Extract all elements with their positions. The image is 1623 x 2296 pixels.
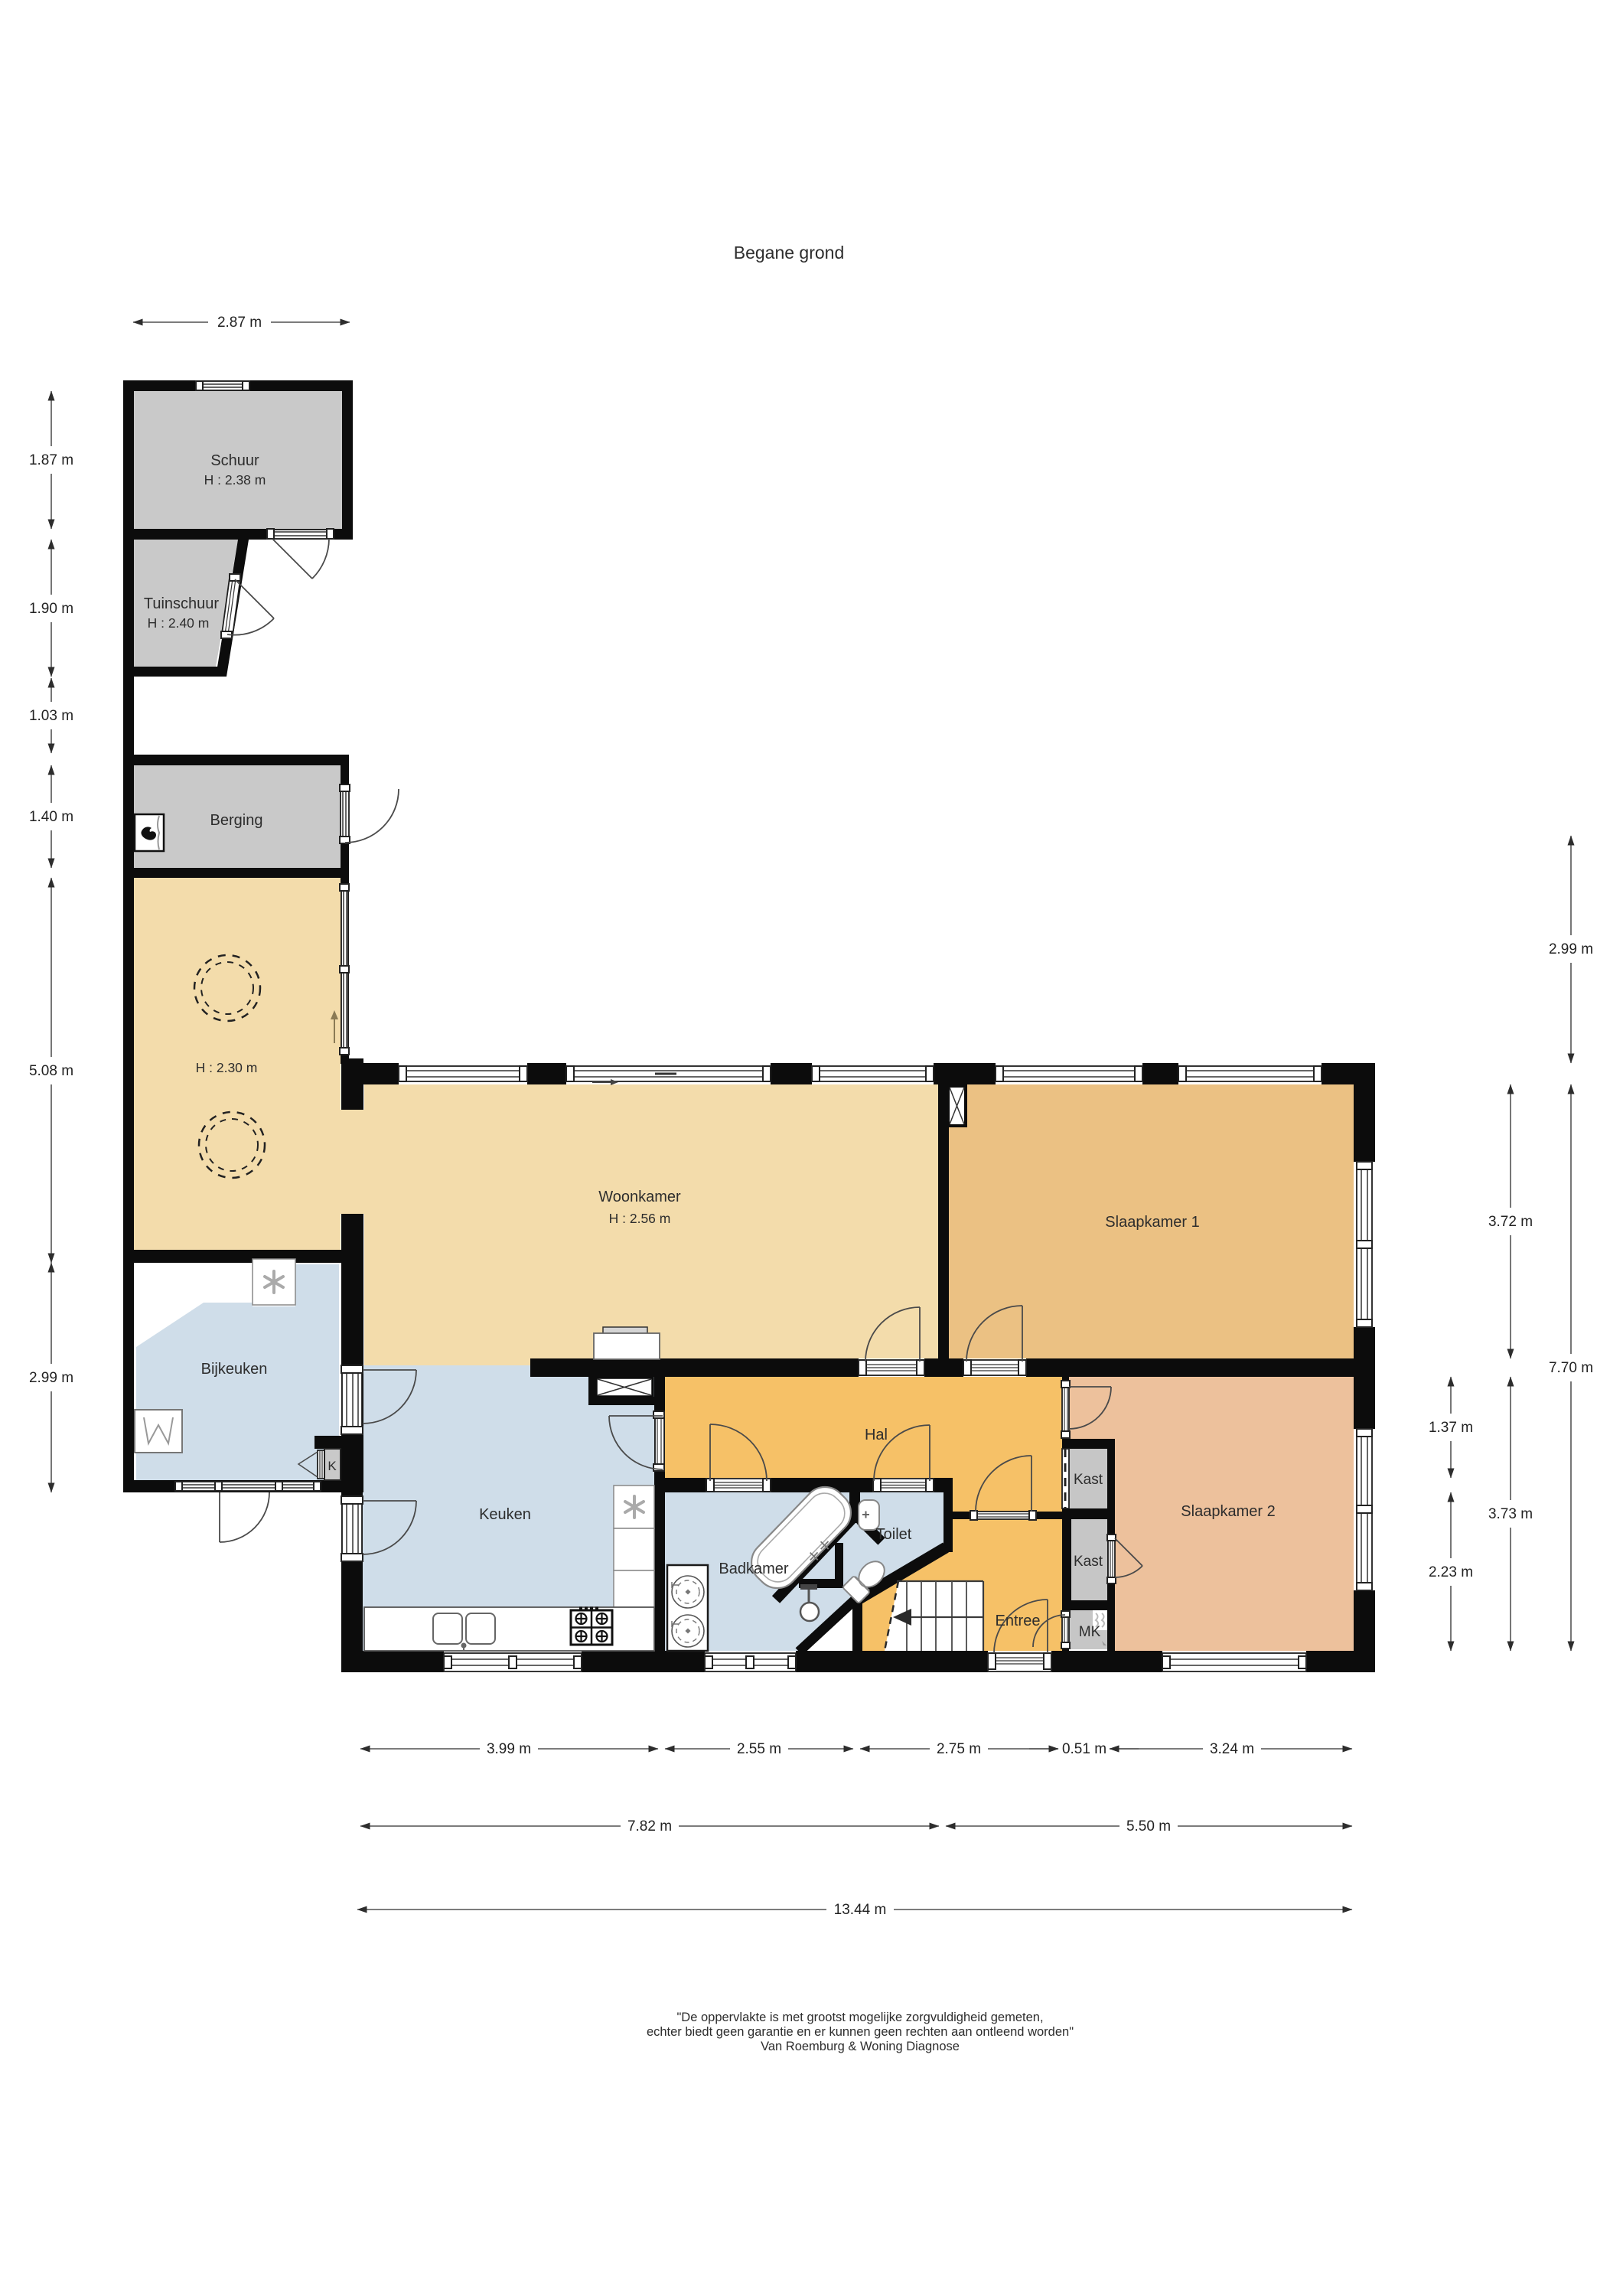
svg-text:Tuinschuur: Tuinschuur — [144, 595, 220, 612]
svg-text:Slaapkamer 1: Slaapkamer 1 — [1105, 1214, 1199, 1231]
svg-text:Berging: Berging — [210, 812, 263, 829]
svg-text:Schuur: Schuur — [210, 452, 259, 469]
svg-text:H : 2.40 m: H : 2.40 m — [148, 615, 210, 631]
svg-text:Woonkamer: Woonkamer — [598, 1189, 681, 1205]
svg-text:2.55 m: 2.55 m — [737, 1741, 781, 1757]
svg-text:1.03 m: 1.03 m — [29, 708, 73, 724]
svg-text:Keuken: Keuken — [479, 1506, 531, 1523]
svg-text:13.44 m: 13.44 m — [834, 1902, 887, 1918]
svg-text:5.50 m: 5.50 m — [1126, 1818, 1171, 1835]
svg-text:1.40 m: 1.40 m — [29, 809, 73, 825]
svg-text:3.99 m: 3.99 m — [487, 1741, 531, 1757]
svg-text:2.99 m: 2.99 m — [1549, 941, 1593, 957]
svg-text:1.90 m: 1.90 m — [29, 601, 73, 617]
svg-text:Bijkeuken: Bijkeuken — [201, 1361, 268, 1378]
svg-text:7.82 m: 7.82 m — [627, 1818, 672, 1835]
svg-text:2.23 m: 2.23 m — [1429, 1564, 1473, 1580]
svg-text:3.72 m: 3.72 m — [1488, 1214, 1533, 1230]
svg-text:Toilet: Toilet — [876, 1526, 912, 1543]
svg-text:"De oppervlakte is met grootst: "De oppervlakte is met grootst mogelijke… — [676, 2011, 1043, 2024]
svg-text:echter biedt geen garantie en: echter biedt geen garantie en er kunnen … — [647, 2025, 1074, 2039]
svg-text:2.87 m: 2.87 m — [217, 315, 262, 331]
svg-text:0.51 m: 0.51 m — [1062, 1741, 1106, 1757]
svg-text:H : 2.30 m: H : 2.30 m — [196, 1060, 258, 1075]
svg-text:Badkamer: Badkamer — [719, 1561, 788, 1577]
svg-text:Van Roemburg & Woning Diagnose: Van Roemburg & Woning Diagnose — [761, 2040, 960, 2053]
svg-text:H : 2.38 m: H : 2.38 m — [204, 472, 266, 488]
svg-text:Kast: Kast — [1074, 1472, 1103, 1488]
svg-text:7.70 m: 7.70 m — [1549, 1360, 1593, 1376]
svg-text:Begane grond: Begane grond — [734, 243, 845, 263]
svg-text:H : 2.56 m: H : 2.56 m — [609, 1211, 671, 1226]
svg-text:Hal: Hal — [865, 1427, 888, 1443]
svg-text:2.99 m: 2.99 m — [29, 1370, 73, 1386]
svg-text:1.37 m: 1.37 m — [1429, 1420, 1473, 1436]
svg-text:3.73 m: 3.73 m — [1488, 1506, 1533, 1522]
svg-text:2.75 m: 2.75 m — [937, 1741, 981, 1757]
svg-text:5.08 m: 5.08 m — [29, 1063, 73, 1079]
svg-text:Entree: Entree — [996, 1613, 1041, 1629]
svg-text:1.87 m: 1.87 m — [29, 452, 73, 468]
svg-text:Slaapkamer 2: Slaapkamer 2 — [1181, 1503, 1275, 1520]
svg-text:Kast: Kast — [1074, 1554, 1103, 1570]
svg-text:K: K — [328, 1459, 337, 1473]
svg-text:3.24 m: 3.24 m — [1210, 1741, 1254, 1757]
svg-text:MK: MK — [1079, 1624, 1101, 1640]
